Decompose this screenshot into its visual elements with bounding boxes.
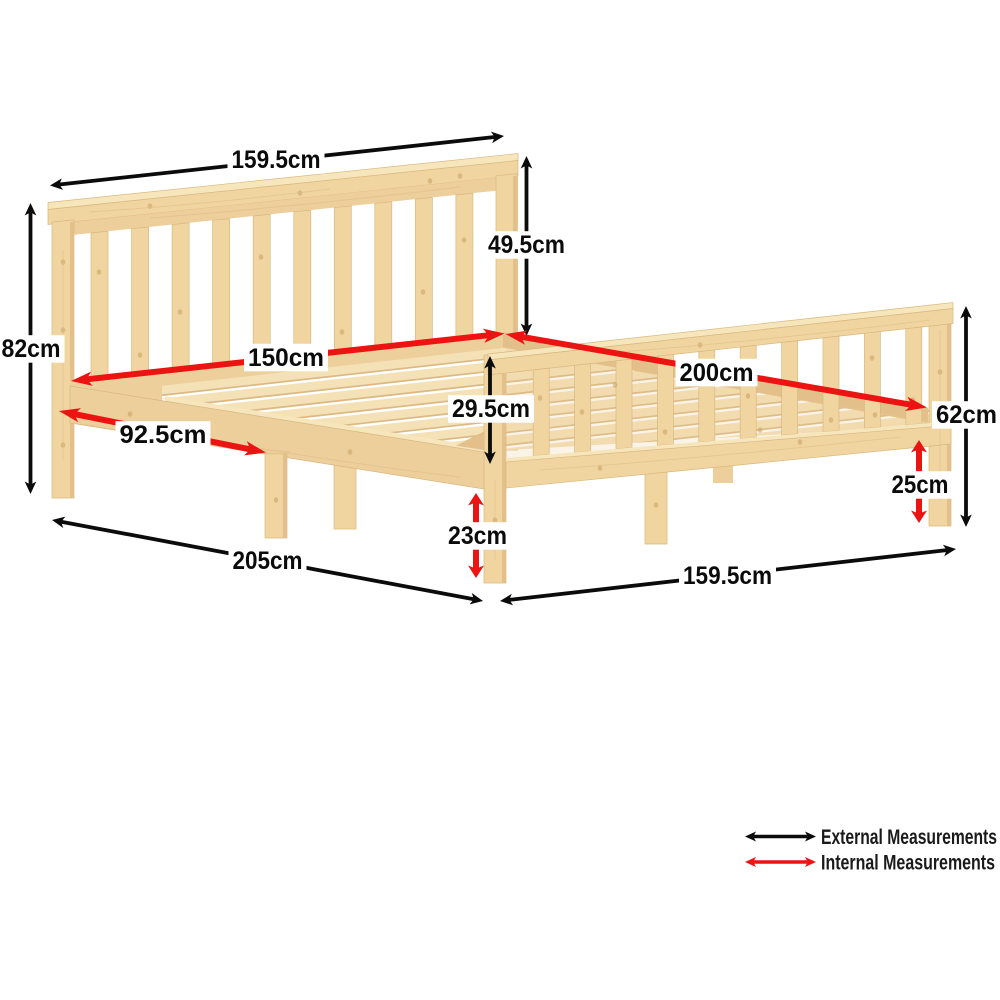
- svg-text:159.5cm: 159.5cm: [683, 562, 772, 590]
- svg-text:205cm: 205cm: [233, 547, 303, 575]
- svg-text:92.5cm: 92.5cm: [120, 421, 207, 449]
- svg-text:External Measurements: External Measurements: [821, 825, 997, 849]
- svg-text:Internal Measurements: Internal Measurements: [821, 851, 995, 875]
- svg-text:25cm: 25cm: [892, 471, 949, 499]
- svg-text:62cm: 62cm: [936, 401, 997, 429]
- svg-text:200cm: 200cm: [680, 359, 754, 387]
- svg-text:49.5cm: 49.5cm: [488, 231, 565, 259]
- svg-text:159.5cm: 159.5cm: [232, 146, 321, 174]
- svg-text:82cm: 82cm: [2, 335, 61, 363]
- svg-text:23cm: 23cm: [448, 522, 507, 550]
- svg-text:29.5cm: 29.5cm: [452, 395, 530, 423]
- svg-text:150cm: 150cm: [248, 344, 324, 372]
